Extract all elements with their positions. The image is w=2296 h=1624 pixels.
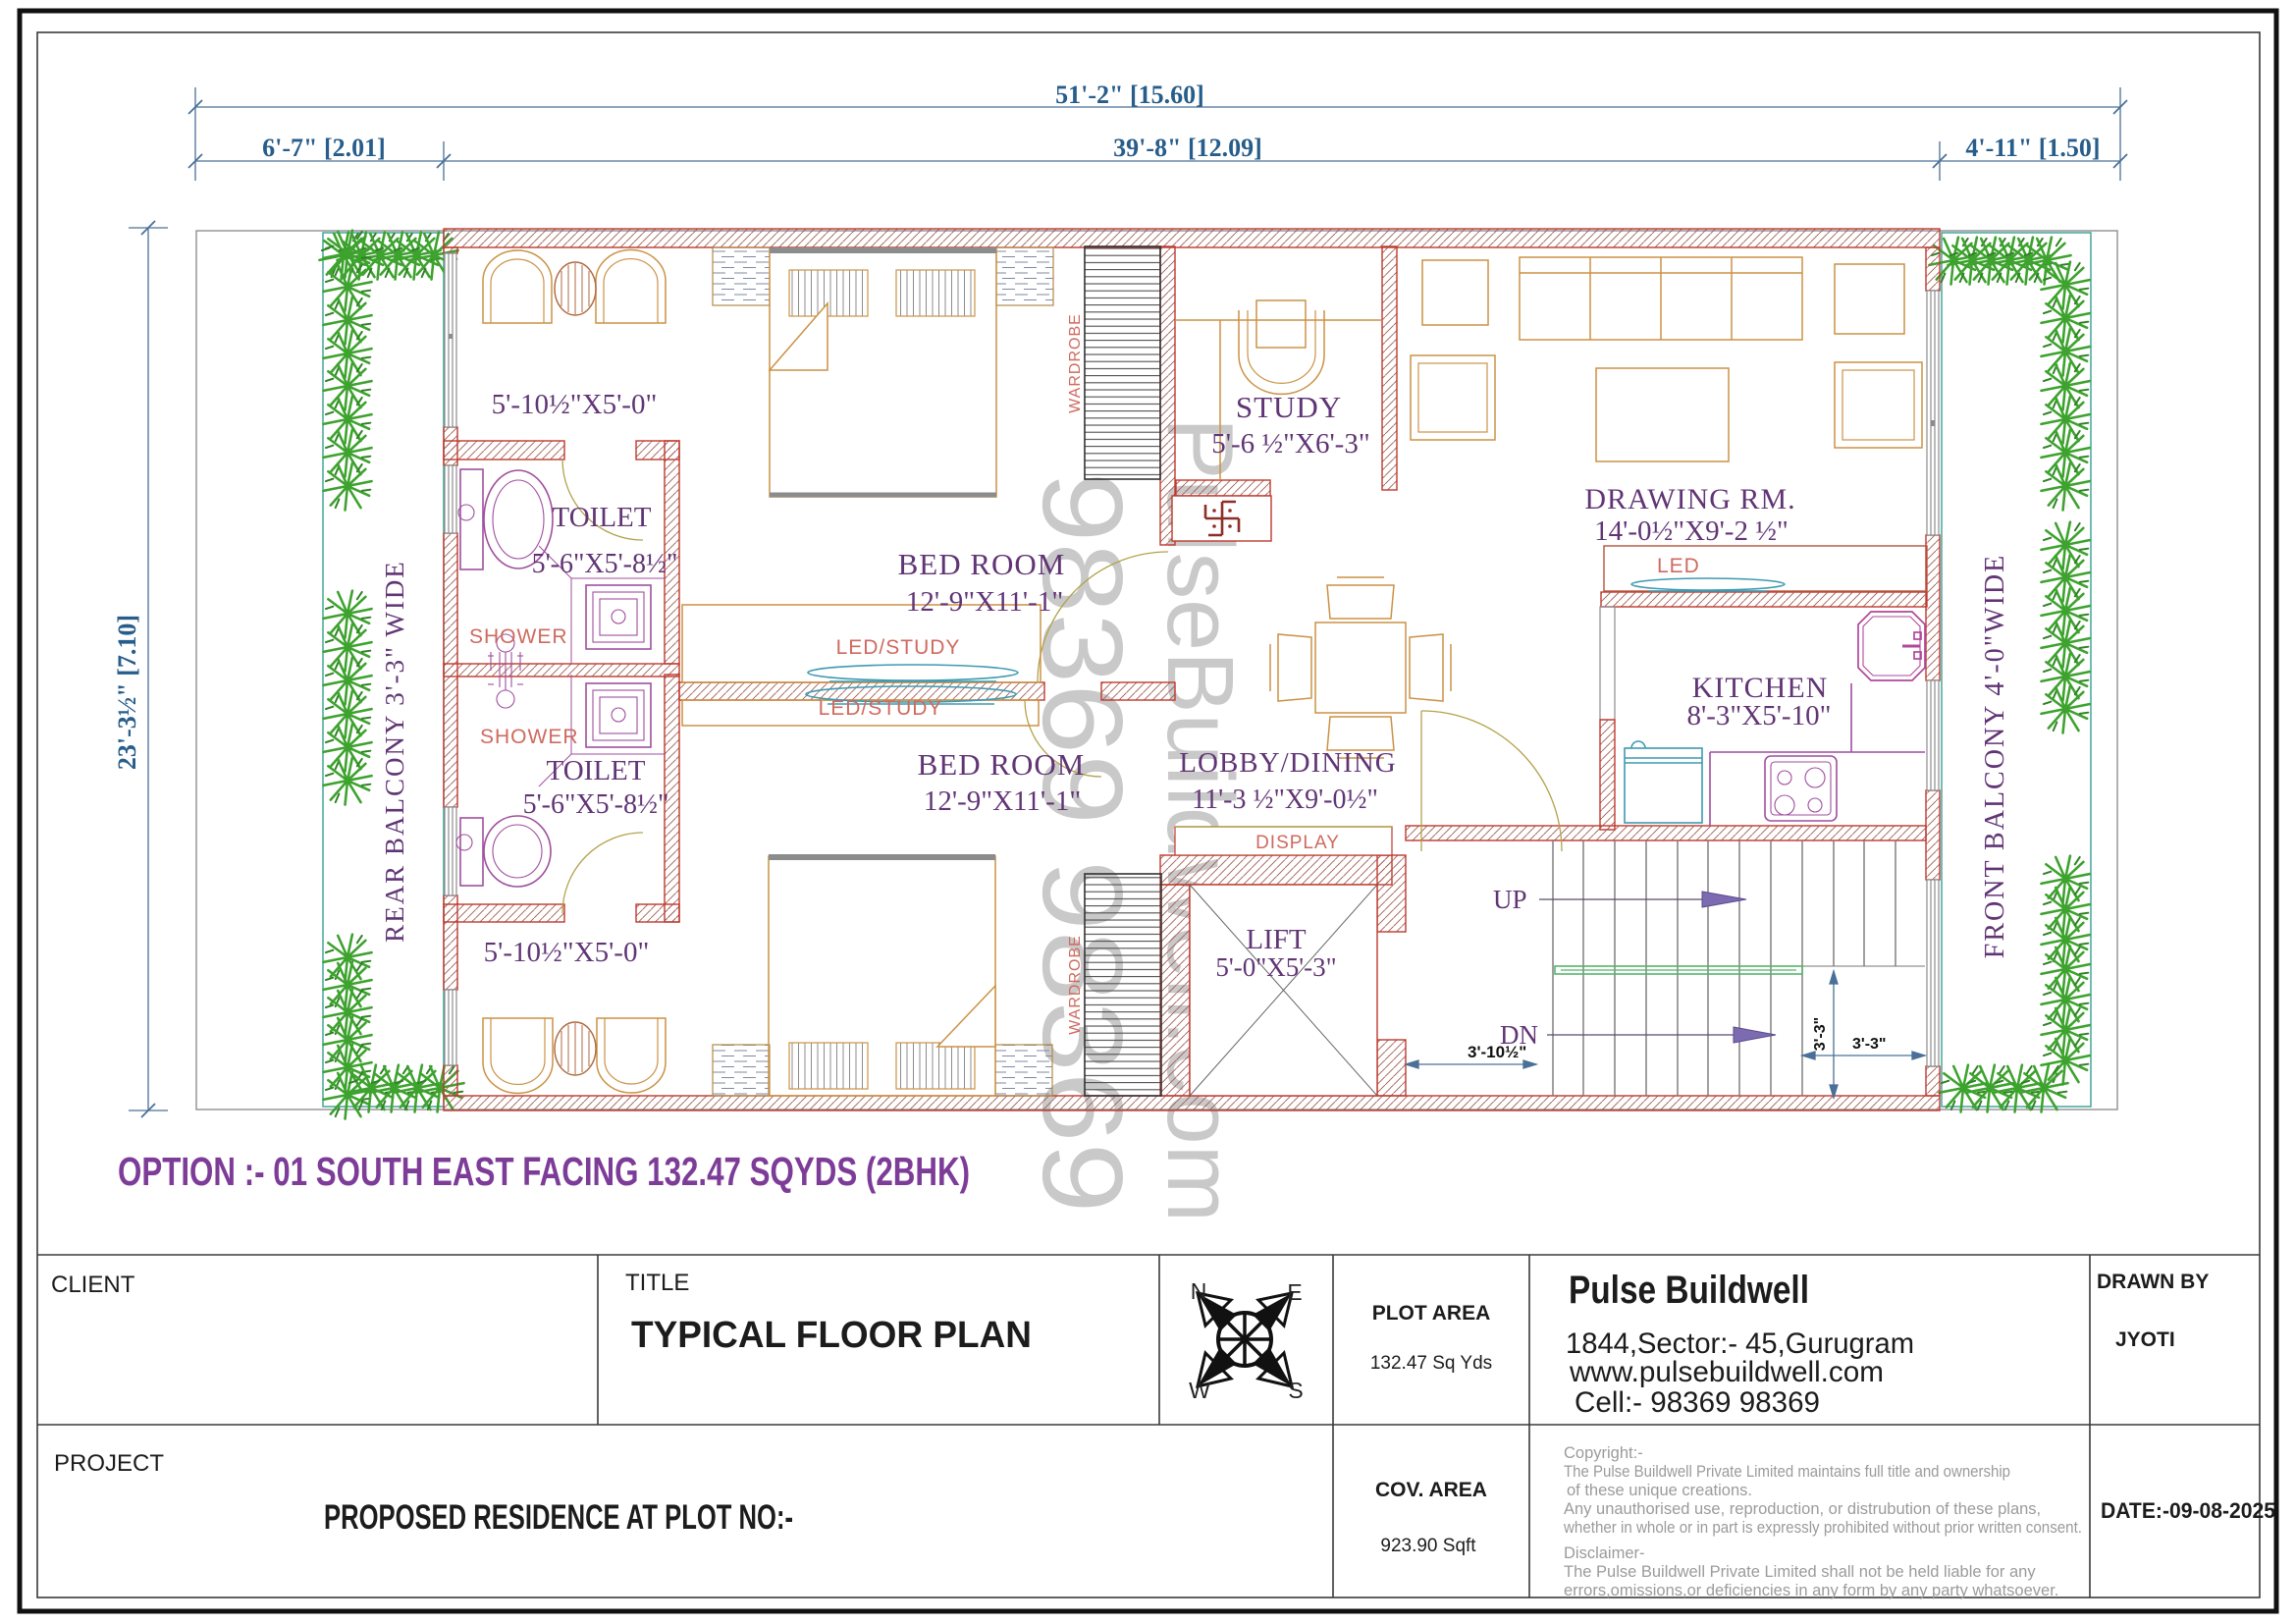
svg-text:SHOWER: SHOWER: [480, 726, 579, 748]
svg-text:Cell:- 98369 98369: Cell:- 98369 98369: [1575, 1386, 1820, 1419]
svg-text:TOILET: TOILET: [547, 755, 646, 786]
svg-text:LED/STUDY: LED/STUDY: [836, 636, 961, 659]
svg-text:3'-10½": 3'-10½": [1468, 1043, 1526, 1061]
svg-text:LIFT: LIFT: [1246, 924, 1307, 955]
svg-text:BED ROOM: BED ROOM: [918, 747, 1086, 782]
svg-text:LED: LED: [1657, 555, 1700, 577]
svg-text:WARDROBE: WARDROBE: [1067, 313, 1084, 413]
svg-text:5'-6 ½"X6'-3": 5'-6 ½"X6'-3": [1211, 428, 1369, 460]
svg-text:JYOTI: JYOTI: [2115, 1328, 2175, 1351]
svg-text:12'-9"X11'-1": 12'-9"X11'-1": [924, 785, 1081, 817]
svg-text:Any unauthorised use, reprodu: Any unauthorised use, reproduction, or d…: [1564, 1500, 2041, 1518]
svg-text:3'-3": 3'-3": [1812, 1017, 1829, 1052]
svg-text:DATE:-09-08-2025: DATE:-09-08-2025: [2101, 1498, 2275, 1523]
svg-text:STUDY: STUDY: [1236, 390, 1342, 424]
svg-text:DRAWING RM.: DRAWING RM.: [1584, 483, 1795, 515]
svg-text:Disclaimer-: Disclaimer-: [1564, 1544, 1645, 1562]
svg-text:E: E: [1287, 1279, 1302, 1305]
svg-text:CLIENT: CLIENT: [51, 1272, 135, 1298]
svg-text:39'-8" [12.09]: 39'-8" [12.09]: [1113, 134, 1262, 162]
svg-text:PLOT AREA: PLOT AREA: [1372, 1302, 1491, 1325]
svg-text:23'-3½" [7.10]: 23'-3½" [7.10]: [113, 615, 141, 770]
svg-text:LED/STUDY: LED/STUDY: [819, 697, 943, 720]
svg-text:12'-9"X11'-1": 12'-9"X11'-1": [906, 586, 1063, 618]
svg-text:W: W: [1189, 1378, 1210, 1403]
svg-text:5'-6"X5'-8½": 5'-6"X5'-8½": [532, 549, 678, 579]
svg-text:www.pulsebuildwell.com: www.pulsebuildwell.com: [1569, 1356, 1884, 1388]
svg-text:132.47 Sq Yds: 132.47 Sq Yds: [1370, 1353, 1492, 1374]
svg-text:errors,omissions,or deficienci: errors,omissions,or deficiencies in any …: [1564, 1582, 2058, 1599]
svg-text:S: S: [1288, 1378, 1303, 1403]
svg-text:PROPOSED RESIDENCE AT PLOT NO:: PROPOSED RESIDENCE AT PLOT NO:-: [324, 1498, 793, 1537]
svg-text:8'-3"X5'-10": 8'-3"X5'-10": [1687, 700, 1832, 731]
svg-text:TOILET: TOILET: [553, 502, 652, 533]
svg-text:DRAWN BY: DRAWN BY: [2097, 1271, 2209, 1293]
svg-text:LOBBY/DINING: LOBBY/DINING: [1179, 747, 1396, 779]
svg-text:5'-10½"X5'-0": 5'-10½"X5'-0": [484, 937, 650, 968]
svg-text:The Pulse Buildwell Private Li: The Pulse Buildwell Private Limited shal…: [1564, 1563, 2036, 1581]
svg-text:DISPLAY: DISPLAY: [1255, 833, 1340, 853]
svg-text:5'-10½"X5'-0": 5'-10½"X5'-0": [492, 389, 658, 420]
svg-text:51'-2" [15.60]: 51'-2" [15.60]: [1055, 81, 1204, 109]
svg-text:TITLE: TITLE: [625, 1270, 689, 1296]
svg-text:6'-7" [2.01]: 6'-7" [2.01]: [262, 134, 386, 162]
svg-text:3'-3": 3'-3": [1852, 1036, 1887, 1053]
svg-text:5'-6"X5'-8½": 5'-6"X5'-8½": [523, 789, 669, 820]
svg-text:Copyright:-: Copyright:-: [1564, 1444, 1643, 1462]
svg-text:11'-3 ½"X9'-0½": 11'-3 ½"X9'-0½": [1192, 785, 1378, 815]
svg-text:WARDROBE: WARDROBE: [1067, 935, 1084, 1035]
svg-text:whether in whole or in part is: whether in whole or in part is expressly…: [1563, 1519, 2082, 1537]
svg-text:N: N: [1191, 1278, 1207, 1304]
svg-text:REAR BALCONY 3'-3" WIDE: REAR BALCONY 3'-3" WIDE: [380, 560, 409, 943]
svg-text:of these unique creations.: of these unique creations.: [1567, 1482, 1752, 1499]
svg-text:TYPICAL FLOOR PLAN: TYPICAL FLOOR PLAN: [631, 1315, 1032, 1356]
svg-text:The Pulse Buildwell Private Li: The Pulse Buildwell Private Limited main…: [1564, 1463, 2010, 1481]
svg-text:SHOWER: SHOWER: [469, 625, 568, 648]
svg-text:FRONT BALCONY 4'-0"WIDE: FRONT BALCONY 4'-0"WIDE: [1980, 554, 2010, 958]
svg-text:5'-0"X5'-3": 5'-0"X5'-3": [1215, 952, 1336, 982]
svg-text:PROJECT: PROJECT: [54, 1450, 164, 1477]
svg-text:14'-0½"X9'-2 ½": 14'-0½"X9'-2 ½": [1594, 515, 1789, 547]
svg-text:COV. AREA: COV. AREA: [1375, 1479, 1487, 1501]
svg-text:Pulse Buildwell: Pulse Buildwell: [1569, 1269, 1809, 1312]
svg-text:4'-11" [1.50]: 4'-11" [1.50]: [1965, 134, 2100, 162]
svg-text:OPTION :- 01 SOUTH EAST FACIN: OPTION :- 01 SOUTH EAST FACING 132.47 SQ…: [118, 1149, 970, 1194]
svg-text:BED ROOM: BED ROOM: [898, 547, 1066, 581]
svg-text:UP: UP: [1493, 885, 1527, 914]
svg-text:923.90 Sqft: 923.90 Sqft: [1380, 1536, 1476, 1556]
